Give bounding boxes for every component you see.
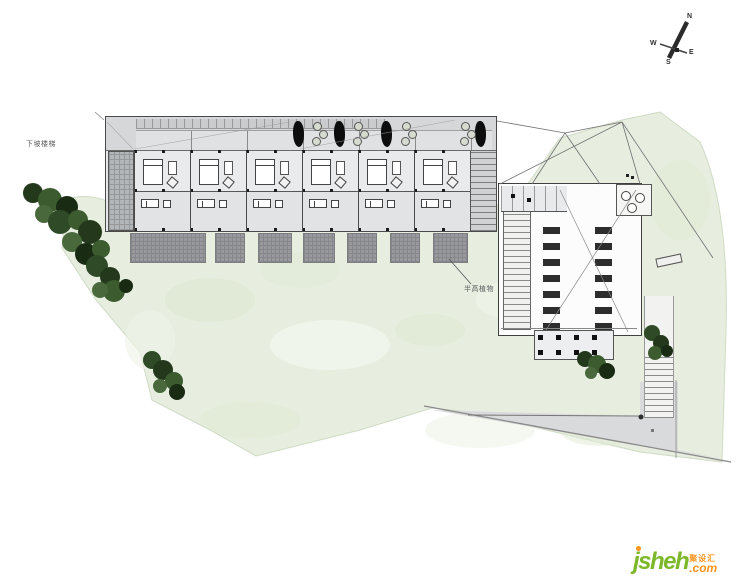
jsheh-tld-text: .com	[689, 563, 717, 574]
coffee-table-symbol	[443, 200, 451, 208]
dresser-symbol	[224, 161, 233, 175]
sofa-symbol	[421, 199, 439, 208]
garden-stair-path	[644, 296, 674, 418]
sofa-symbol	[253, 199, 271, 208]
terrace-deck	[215, 233, 245, 263]
bed-symbol	[367, 159, 387, 185]
plaza-paving	[432, 382, 722, 459]
housing-unit	[358, 151, 414, 231]
terrace-deck	[303, 233, 335, 263]
coffee-table-symbol	[331, 200, 339, 208]
dining-tables-column	[595, 218, 612, 330]
outdoor-round-tables	[616, 184, 652, 216]
bed-symbol	[143, 159, 163, 185]
bed-symbol	[255, 159, 275, 185]
compass-icon	[660, 21, 689, 59]
stair-treads	[645, 356, 673, 418]
dining-tables-column	[543, 218, 560, 330]
table-symbol	[334, 176, 347, 189]
entry-stair-block	[108, 151, 134, 231]
terrace-deck	[258, 233, 292, 263]
interior-wall-line	[501, 328, 637, 329]
dresser-symbol	[280, 161, 289, 175]
dresser-symbol	[392, 161, 401, 175]
shrub-icons	[453, 121, 477, 147]
plaza-edge-line	[468, 415, 641, 416]
fixture-symbol	[527, 198, 531, 202]
housing-unit	[414, 151, 470, 231]
kitchen-rooms	[501, 186, 567, 212]
corner-tick-mark	[95, 112, 104, 120]
downhill-stairs-label: 下坡楼梯	[26, 139, 56, 149]
compass-south-label: S	[666, 59, 671, 66]
coffee-table-symbol	[387, 200, 395, 208]
half-height-plants-label: 半高植物	[464, 284, 494, 294]
bed-symbol	[423, 159, 443, 185]
sofa-symbol	[309, 199, 327, 208]
housing-building	[105, 116, 497, 232]
sofa-symbol	[365, 199, 383, 208]
dresser-symbol	[448, 161, 457, 175]
dresser-symbol	[168, 161, 177, 175]
bench-symbol	[655, 253, 682, 267]
bed-symbol	[199, 159, 219, 185]
terrace-deck	[433, 233, 468, 263]
compass-north-label: N	[687, 13, 692, 20]
ramp-stairs-hatch	[503, 192, 531, 330]
shrub-icons	[394, 121, 418, 147]
shrub-icons	[305, 121, 329, 147]
column-deck	[534, 330, 614, 360]
housing-unit	[246, 151, 302, 231]
shrub-icons	[346, 121, 370, 147]
table-symbol	[166, 176, 179, 189]
coffee-table-symbol	[275, 200, 283, 208]
housing-unit	[302, 151, 358, 231]
terrace-deck	[347, 233, 377, 263]
courtyard-tree-icon	[381, 121, 392, 147]
terrace-deck	[130, 233, 206, 263]
table-symbol	[278, 176, 291, 189]
round-table-symbol	[635, 193, 645, 203]
compass-east-label: E	[689, 49, 694, 56]
courtyard-tree-icon	[293, 121, 304, 147]
jsheh-brand-text: jsheh	[633, 549, 688, 575]
jsheh-watermark-link[interactable]: jsheh 聚设汇 .com	[633, 543, 717, 575]
courtyard-tree-icon	[334, 121, 345, 147]
site-boundary-line	[424, 406, 731, 462]
site-plan-canvas: 下坡楼梯 半高植物 N W E S jsheh 聚设汇 .com	[0, 0, 750, 578]
logo-j-dot-icon	[636, 546, 641, 551]
coffee-table-symbol	[219, 200, 227, 208]
fixture-symbol	[511, 194, 515, 198]
deck-posts	[538, 350, 610, 355]
tree-cluster-mid	[143, 351, 185, 400]
table-symbol	[446, 176, 459, 189]
deck-posts	[538, 335, 610, 340]
dresser-symbol	[336, 161, 345, 175]
terrace-deck	[390, 233, 420, 263]
housing-unit	[190, 151, 246, 231]
compass-west-label: W	[650, 40, 657, 47]
housing-unit	[134, 151, 190, 231]
round-table-symbol	[621, 191, 631, 201]
plaza-annotation-mark	[651, 429, 654, 432]
end-stair-block	[470, 151, 496, 231]
table-symbol	[222, 176, 235, 189]
round-table-symbol	[627, 203, 637, 213]
sofa-symbol	[141, 199, 159, 208]
path-end-node	[639, 415, 644, 420]
coffee-table-symbol	[163, 200, 171, 208]
sofa-symbol	[197, 199, 215, 208]
table-symbol	[390, 176, 403, 189]
bed-symbol	[311, 159, 331, 185]
patio-annotation-mark	[626, 174, 629, 177]
